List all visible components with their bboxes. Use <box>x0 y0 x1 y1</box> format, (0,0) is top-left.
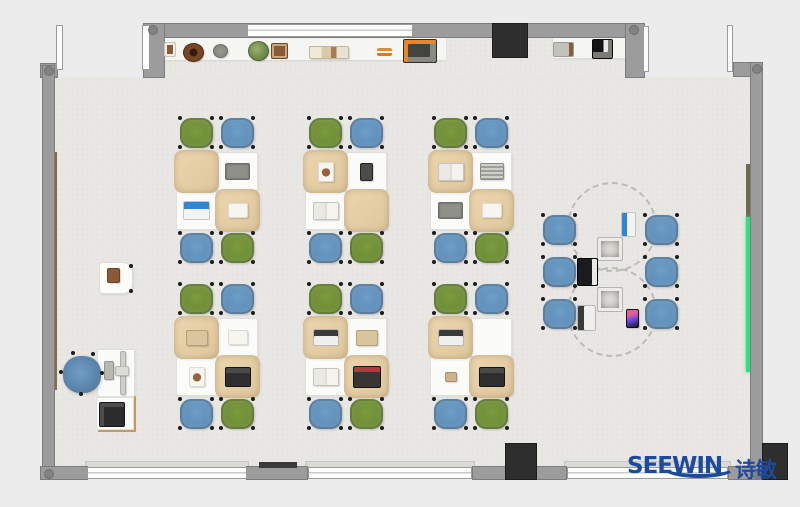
chair-foot <box>348 282 352 286</box>
chair-foot <box>251 145 255 149</box>
chair-foot <box>505 311 509 315</box>
chair-foot <box>251 231 255 235</box>
chair-foot <box>210 231 214 235</box>
chair-foot <box>464 397 468 401</box>
chair-foot <box>505 282 509 286</box>
chair-foot <box>210 145 214 149</box>
chair-foot <box>210 426 214 430</box>
cabinet-item <box>107 268 120 283</box>
teacher-chair-caster <box>59 370 63 374</box>
student-chair-blue <box>434 233 467 263</box>
chair-foot <box>464 231 468 235</box>
desk-item-laptop-dark <box>479 367 505 387</box>
teacher-chair-caster <box>79 392 83 396</box>
desk-item-book-open <box>438 163 464 181</box>
chair-foot <box>541 297 545 301</box>
student-chair-green <box>180 118 213 148</box>
window <box>247 24 413 37</box>
chair-foot <box>505 426 509 430</box>
table-edge-trim <box>98 430 136 432</box>
chair-foot <box>178 231 182 235</box>
chair-foot <box>505 397 509 401</box>
chair-foot <box>505 145 509 149</box>
chair-foot <box>339 426 343 430</box>
collab-chair <box>543 299 576 329</box>
chair-foot <box>178 426 182 430</box>
chair-foot <box>348 426 352 430</box>
chair-foot <box>307 426 311 430</box>
cabinet-foot <box>129 289 133 293</box>
chair-foot <box>348 311 352 315</box>
chair-foot <box>541 255 545 259</box>
chair-foot <box>675 242 679 246</box>
shelf-item-machine <box>592 39 613 59</box>
wall-cap <box>752 64 762 74</box>
chair-foot <box>473 145 477 149</box>
chair-foot <box>219 426 223 430</box>
chair-foot <box>675 326 679 330</box>
wall-unit-dark <box>492 23 528 58</box>
chair-foot <box>219 260 223 264</box>
chair-foot <box>432 311 436 315</box>
chair-foot <box>473 282 477 286</box>
chair-foot <box>307 145 311 149</box>
chair-foot <box>219 282 223 286</box>
chair-foot <box>339 282 343 286</box>
student-chair-blue <box>221 284 254 314</box>
chair-foot <box>675 284 679 288</box>
shelf-item-books <box>309 46 349 59</box>
chair-foot <box>219 145 223 149</box>
shelf-item-pot-ring <box>183 43 204 62</box>
desk-item-photo <box>189 367 205 387</box>
chair-foot <box>380 116 384 120</box>
desk-cover <box>344 189 389 232</box>
chair-foot <box>251 260 255 264</box>
student-chair-green <box>434 284 467 314</box>
chair-foot <box>251 426 255 430</box>
desk-item-paper <box>228 203 248 218</box>
wall-cap <box>148 25 158 35</box>
desk-cover <box>174 150 219 193</box>
chair-foot <box>219 116 223 120</box>
student-chair-blue <box>434 399 467 429</box>
chair-foot <box>643 255 647 259</box>
chair-foot <box>307 282 311 286</box>
collab-item-tablet-blue-v <box>621 212 636 237</box>
wall-cap <box>44 66 54 76</box>
chair-foot <box>178 260 182 264</box>
brand-name-chinese: 诗敏 <box>735 454 777 484</box>
chair-foot <box>210 116 214 120</box>
desk-item-box-tan <box>445 372 457 382</box>
desk-item-tablet-dark <box>360 163 373 181</box>
shelf-item-frame-photo <box>271 43 288 59</box>
student-chair-green <box>475 399 508 429</box>
desk-item-tablet-striped <box>480 163 504 180</box>
chair-foot <box>464 426 468 430</box>
chair-foot <box>348 116 352 120</box>
chair-foot <box>675 213 679 217</box>
collab-item-device-photo <box>597 237 623 261</box>
wall-segment <box>750 62 763 468</box>
student-chair-blue <box>221 118 254 148</box>
window <box>87 467 247 479</box>
column-block <box>505 443 537 480</box>
desk-item-book-open <box>313 368 339 386</box>
student-chair-green <box>221 399 254 429</box>
chair-foot <box>178 116 182 120</box>
student-chair-green <box>180 284 213 314</box>
chair-foot <box>380 282 384 286</box>
chair-foot <box>339 145 343 149</box>
chair-foot <box>473 260 477 264</box>
chair-foot <box>339 231 343 235</box>
chair-foot <box>473 426 477 430</box>
desk-item-book-open <box>313 202 339 220</box>
desk-item-laptop-gray <box>225 163 250 180</box>
table-edge-trim <box>134 396 136 432</box>
collab-chair <box>543 215 576 245</box>
student-chair-blue <box>180 233 213 263</box>
student-chair-green <box>434 118 467 148</box>
chair-foot <box>432 282 436 286</box>
chair-foot <box>541 242 545 246</box>
chair-foot <box>339 397 343 401</box>
student-chair-blue <box>475 284 508 314</box>
cabinet-foot <box>129 264 133 268</box>
chair-foot <box>210 282 214 286</box>
chair-foot <box>251 311 255 315</box>
student-chair-blue <box>350 284 383 314</box>
chair-foot <box>473 311 477 315</box>
chair-foot <box>251 116 255 120</box>
chair-foot <box>643 326 647 330</box>
chair-foot <box>380 397 384 401</box>
chair-foot <box>348 397 352 401</box>
student-chair-blue <box>350 118 383 148</box>
chair-foot <box>178 311 182 315</box>
desk-item-laptop-gray <box>438 202 463 219</box>
shelf-item-tray <box>403 39 437 63</box>
student-chair-green <box>350 233 383 263</box>
chair-foot <box>178 145 182 149</box>
shelf-item-frame-small <box>164 42 176 57</box>
teacher-chair-caster <box>100 371 104 375</box>
collab-chair <box>645 215 678 245</box>
chair-foot <box>573 242 577 246</box>
shelf-item-plant-green <box>248 41 269 61</box>
student-chair-green <box>350 399 383 429</box>
teacher-chair-caster <box>91 352 95 356</box>
desk-item-laptop-red <box>353 366 381 388</box>
desk-item-book-tan <box>186 330 208 346</box>
student-chair-green <box>475 233 508 263</box>
chair-foot <box>348 260 352 264</box>
collab-item-device-photo <box>597 287 623 312</box>
chair-foot <box>307 397 311 401</box>
chair-foot <box>473 231 477 235</box>
chair-foot <box>178 282 182 286</box>
student-chair-green <box>221 233 254 263</box>
chair-foot <box>432 145 436 149</box>
wall-cap <box>629 25 639 35</box>
collab-chair <box>543 257 576 287</box>
chair-foot <box>464 260 468 264</box>
chair-foot <box>432 397 436 401</box>
brand-swoosh-icon <box>663 458 735 478</box>
teacher-chair <box>63 356 101 393</box>
shelf-item-pencils <box>377 48 392 56</box>
chair-foot <box>505 116 509 120</box>
printer <box>99 402 125 427</box>
desk-item-laptop-dark <box>225 367 251 387</box>
chair-foot <box>307 231 311 235</box>
chair-foot <box>210 397 214 401</box>
collab-item-phone-color <box>626 309 639 328</box>
student-chair-green <box>309 284 342 314</box>
desk-item-tablet-blue <box>183 201 210 220</box>
chair-foot <box>541 284 545 288</box>
chair-foot <box>348 145 352 149</box>
wall-segment <box>42 65 55 469</box>
brand-logo: SEEWIN 诗敏 <box>627 451 799 489</box>
chair-foot <box>251 282 255 286</box>
wall-cap <box>44 469 54 479</box>
chair-foot <box>339 116 343 120</box>
chair-foot <box>432 426 436 430</box>
desk-item-laptop-white <box>438 329 464 346</box>
chair-foot <box>380 426 384 430</box>
desk-item-laptop-white <box>313 329 339 346</box>
chair-foot <box>210 311 214 315</box>
chair-foot <box>219 397 223 401</box>
desk-item-paper <box>482 203 502 218</box>
chair-foot <box>473 116 477 120</box>
shelf-item-pot-gray <box>213 44 228 58</box>
student-chair-blue <box>180 399 213 429</box>
chair-foot <box>643 297 647 301</box>
chair-foot <box>643 242 647 246</box>
chair-foot <box>251 397 255 401</box>
teacher-keyboard <box>104 361 114 380</box>
chair-foot <box>464 116 468 120</box>
chair-foot <box>339 311 343 315</box>
collab-item-laptop-white-v <box>577 305 596 331</box>
student-chair-blue <box>309 233 342 263</box>
chair-foot <box>307 260 311 264</box>
chair-foot <box>219 311 223 315</box>
chair-foot <box>573 297 577 301</box>
chair-foot <box>432 231 436 235</box>
chair-foot <box>210 260 214 264</box>
teacher-chair-caster <box>71 351 75 355</box>
chair-foot <box>432 260 436 264</box>
chair-foot <box>505 260 509 264</box>
student-desk <box>471 318 512 357</box>
shelf-item-box-gray <box>553 42 574 57</box>
collab-item-laptop-black <box>577 258 598 286</box>
chair-foot <box>348 231 352 235</box>
chair-foot <box>339 260 343 264</box>
chair-foot <box>432 116 436 120</box>
desk-item-photo <box>318 162 334 182</box>
chair-foot <box>219 231 223 235</box>
wall-segment <box>246 466 308 480</box>
teacher-monitor-base <box>115 366 129 376</box>
door-leaf <box>727 25 733 72</box>
chair-foot <box>178 397 182 401</box>
desk-item-book-tan <box>356 330 378 346</box>
chair-foot <box>643 213 647 217</box>
chair-foot <box>464 282 468 286</box>
chair-foot <box>464 145 468 149</box>
chair-foot <box>307 311 311 315</box>
chair-foot <box>307 116 311 120</box>
door-leaf <box>643 26 649 72</box>
chair-foot <box>464 311 468 315</box>
window <box>308 467 472 479</box>
chair-foot <box>473 397 477 401</box>
door-leaf <box>56 25 63 70</box>
desk-item-paper <box>228 330 248 345</box>
chair-foot <box>675 297 679 301</box>
chair-foot <box>380 231 384 235</box>
chair-foot <box>643 284 647 288</box>
chair-foot <box>505 231 509 235</box>
collab-chair <box>645 257 678 287</box>
collab-chair <box>645 299 678 329</box>
student-chair-blue <box>309 399 342 429</box>
chair-foot <box>675 255 679 259</box>
wall-dark-strip <box>259 462 297 468</box>
chair-foot <box>541 326 545 330</box>
floor-plan: SEEWIN 诗敏 <box>0 0 800 507</box>
chair-foot <box>541 213 545 217</box>
student-chair-green <box>309 118 342 148</box>
chair-foot <box>380 260 384 264</box>
chair-foot <box>380 311 384 315</box>
chair-foot <box>573 213 577 217</box>
chair-foot <box>380 145 384 149</box>
student-chair-blue <box>475 118 508 148</box>
